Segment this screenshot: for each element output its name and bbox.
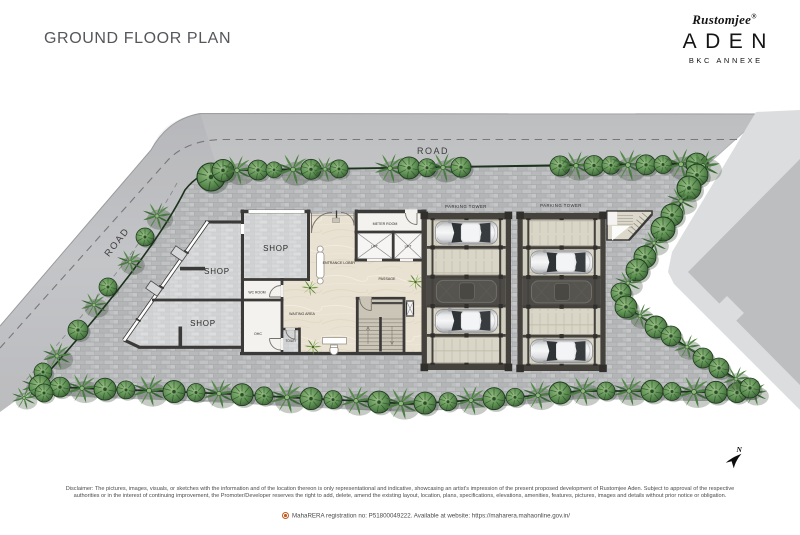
svg-text:SHOP: SHOP xyxy=(190,319,216,328)
svg-text:METER ROOM: METER ROOM xyxy=(373,222,398,226)
svg-text:ENTRANCE LOBBY: ENTRANCE LOBBY xyxy=(323,261,356,265)
svg-text:WAITING AREA: WAITING AREA xyxy=(289,312,315,316)
svg-text:LIFT: LIFT xyxy=(405,245,412,249)
svg-text:N: N xyxy=(736,445,743,454)
svg-text:WC ROOM: WC ROOM xyxy=(248,291,265,295)
svg-text:LIFT: LIFT xyxy=(371,245,378,249)
svg-text:OHC: OHC xyxy=(254,332,262,336)
svg-text:PARKING TOWER: PARKING TOWER xyxy=(540,203,582,208)
svg-text:ROAD: ROAD xyxy=(417,146,449,156)
svg-text:SHOP: SHOP xyxy=(263,244,289,253)
svg-text:PASSAGE: PASSAGE xyxy=(379,277,397,281)
svg-text:TOILET: TOILET xyxy=(285,339,296,343)
svg-text:PARKING TOWER: PARKING TOWER xyxy=(445,204,487,209)
svg-text:SHOP: SHOP xyxy=(204,267,230,276)
